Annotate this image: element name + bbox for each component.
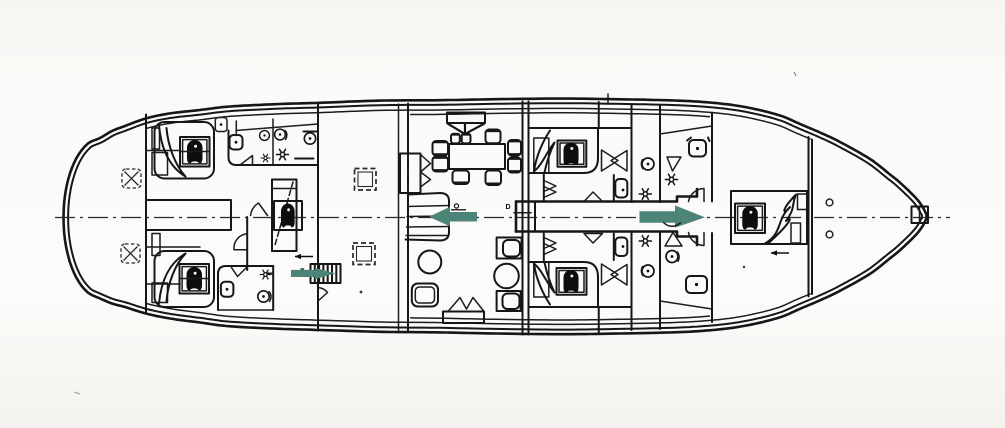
svg-text:D: D (506, 204, 511, 211)
